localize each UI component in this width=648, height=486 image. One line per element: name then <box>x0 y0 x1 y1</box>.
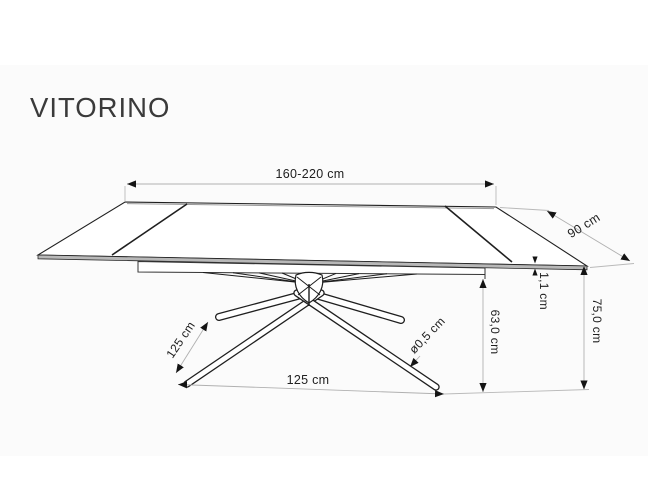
product-title: VITORINO <box>30 92 170 123</box>
total-height-label: 75,0 cm <box>590 299 604 344</box>
table-dimension-drawing: VITORINO <box>0 0 648 486</box>
top-thickness-label: 1,1 cm <box>537 272 551 310</box>
leg-span-front-label: 125 cm <box>287 373 330 387</box>
length-label: 160-220 cm <box>275 167 344 181</box>
clearance-label: 63,0 cm <box>488 310 502 355</box>
dimension-diagram-page: VITORINO <box>0 0 648 486</box>
